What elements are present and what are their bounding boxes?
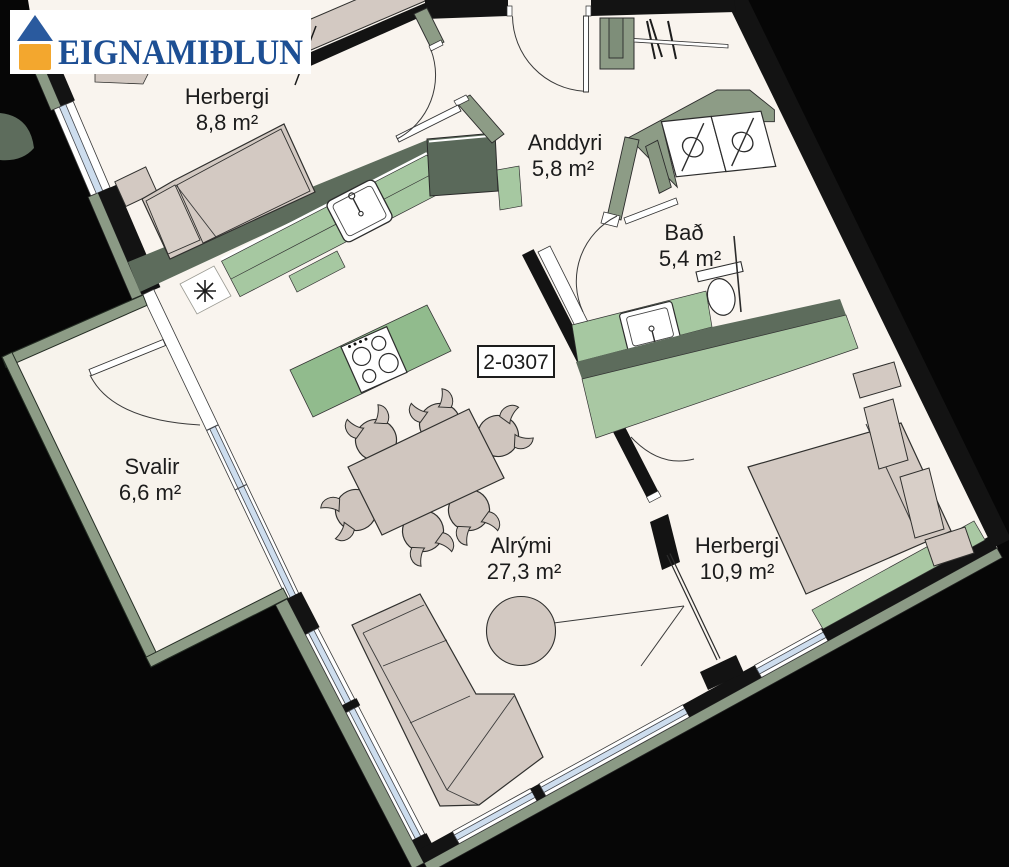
svg-text:Svalir: Svalir (124, 454, 179, 479)
svg-text:27,3 m²: 27,3 m² (487, 559, 562, 584)
svg-text:2-0307: 2-0307 (483, 351, 548, 374)
svg-text:10,9 m²: 10,9 m² (700, 559, 775, 584)
svg-text:Anddyri: Anddyri (528, 130, 603, 155)
svg-text:5,8 m²: 5,8 m² (532, 156, 594, 181)
svg-text:Herbergi: Herbergi (185, 84, 269, 109)
svg-text:EIGNAMIÐLUN: EIGNAMIÐLUN (58, 32, 303, 72)
svg-text:8,8 m²: 8,8 m² (196, 110, 258, 135)
svg-text:Herbergi: Herbergi (695, 533, 779, 558)
svg-text:Alrými: Alrými (490, 533, 551, 558)
svg-text:5,4 m²: 5,4 m² (659, 246, 721, 271)
svg-text:6,6 m²: 6,6 m² (119, 480, 181, 505)
svg-text:Bað: Bað (664, 220, 703, 245)
